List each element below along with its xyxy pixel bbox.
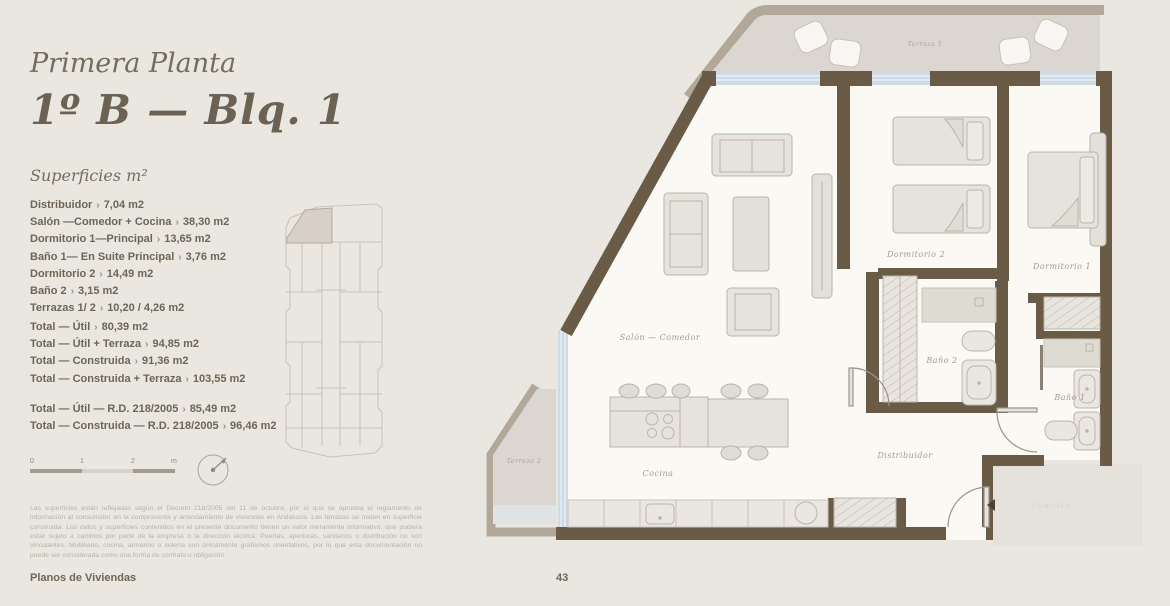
shower-tray-icon: [962, 360, 996, 405]
label-terraza2: Terraza 2: [507, 457, 542, 465]
single-bed: [893, 117, 990, 165]
toilet-icon: [1045, 421, 1077, 440]
label-common-area: COMUNES: [1032, 504, 1071, 510]
sliding-door-leaf: [1040, 345, 1043, 390]
shower-counter: [1044, 339, 1100, 367]
sofa-large: [712, 134, 792, 176]
kitchen-counter: [568, 500, 828, 527]
toilet-icon: [962, 331, 995, 351]
tv-sideboard: [812, 174, 832, 298]
label-salon: Salón — Comedor: [620, 333, 701, 342]
label-dormitorio1: Dormitorio 1: [1032, 262, 1091, 271]
sink-icon: [1074, 412, 1100, 450]
window-band-top: [702, 72, 1100, 85]
entrance-closet: [834, 498, 896, 527]
coffee-table: [733, 197, 769, 271]
label-bano2: Baño 2: [925, 356, 957, 365]
label-terraza1: Terraza 1: [908, 40, 943, 48]
label-cocina: Cocina: [643, 469, 674, 478]
wardrobe-bano1: [1044, 297, 1100, 329]
double-bed: [1028, 152, 1098, 228]
label-bano1: Baño 1: [1053, 393, 1085, 402]
shower-counter: [922, 288, 996, 322]
label-distribuidor: Distribuidor: [876, 451, 933, 460]
entrance-opening: [946, 527, 986, 540]
window-band-left: [558, 330, 568, 530]
dining-table: [708, 399, 788, 447]
kitchen-island: [610, 397, 708, 447]
label-dormitorio2: Dormitorio 2: [886, 250, 945, 259]
brochure-page: Primera Planta 1º B — Blq. 1 Superficies…: [0, 0, 1170, 606]
floor-plan: Terraza 1 Terraza 2 Salón — Comedor Coci…: [0, 0, 1170, 606]
sink-icon: [1074, 370, 1100, 408]
terrace2-edge-strip: [493, 505, 556, 524]
single-bed: [893, 185, 990, 233]
sofa-small: [664, 193, 708, 275]
armchair: [727, 288, 779, 336]
